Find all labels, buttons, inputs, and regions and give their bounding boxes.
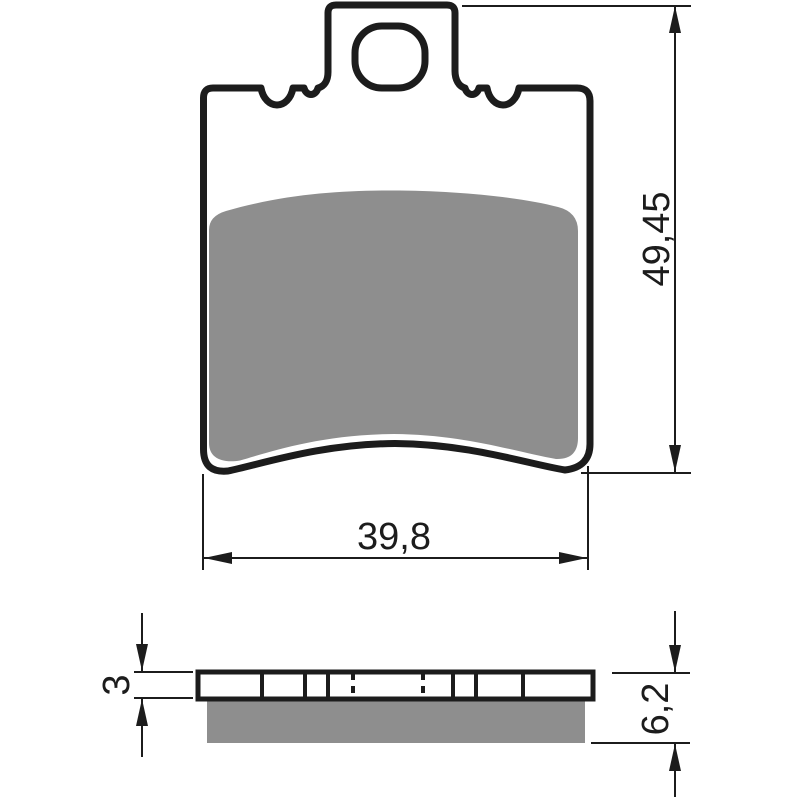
arrowhead-right-icon <box>559 552 587 564</box>
brake-pad-technical-drawing: 49,45 39,8 3 <box>0 0 800 800</box>
arrowhead-down-icon <box>669 645 681 672</box>
front-view <box>204 5 591 471</box>
friction-material-front <box>209 191 578 462</box>
plate-thickness-label: 3 <box>96 674 138 695</box>
arrowhead-up-icon <box>669 6 681 33</box>
drawing-canvas: 49,45 39,8 3 <box>0 0 800 800</box>
arrowhead-down-icon <box>669 445 681 472</box>
total-thickness-label: 6,2 <box>635 683 677 736</box>
arrowhead-down-icon <box>136 644 148 671</box>
arrowhead-up-icon <box>136 699 148 726</box>
dimension-total-thickness: 6,2 <box>591 611 690 797</box>
mounting-hole <box>355 26 425 88</box>
height-dimension-label: 49,45 <box>636 191 678 286</box>
backing-plate-side <box>198 672 593 699</box>
arrowhead-left-icon <box>204 552 232 564</box>
side-view <box>198 672 593 743</box>
dimension-width: 39,8 <box>203 466 588 570</box>
width-dimension-label: 39,8 <box>357 516 431 558</box>
friction-material-side <box>207 699 585 743</box>
arrowhead-up-icon <box>669 744 681 771</box>
dimension-plate-thickness: 3 <box>96 613 193 757</box>
